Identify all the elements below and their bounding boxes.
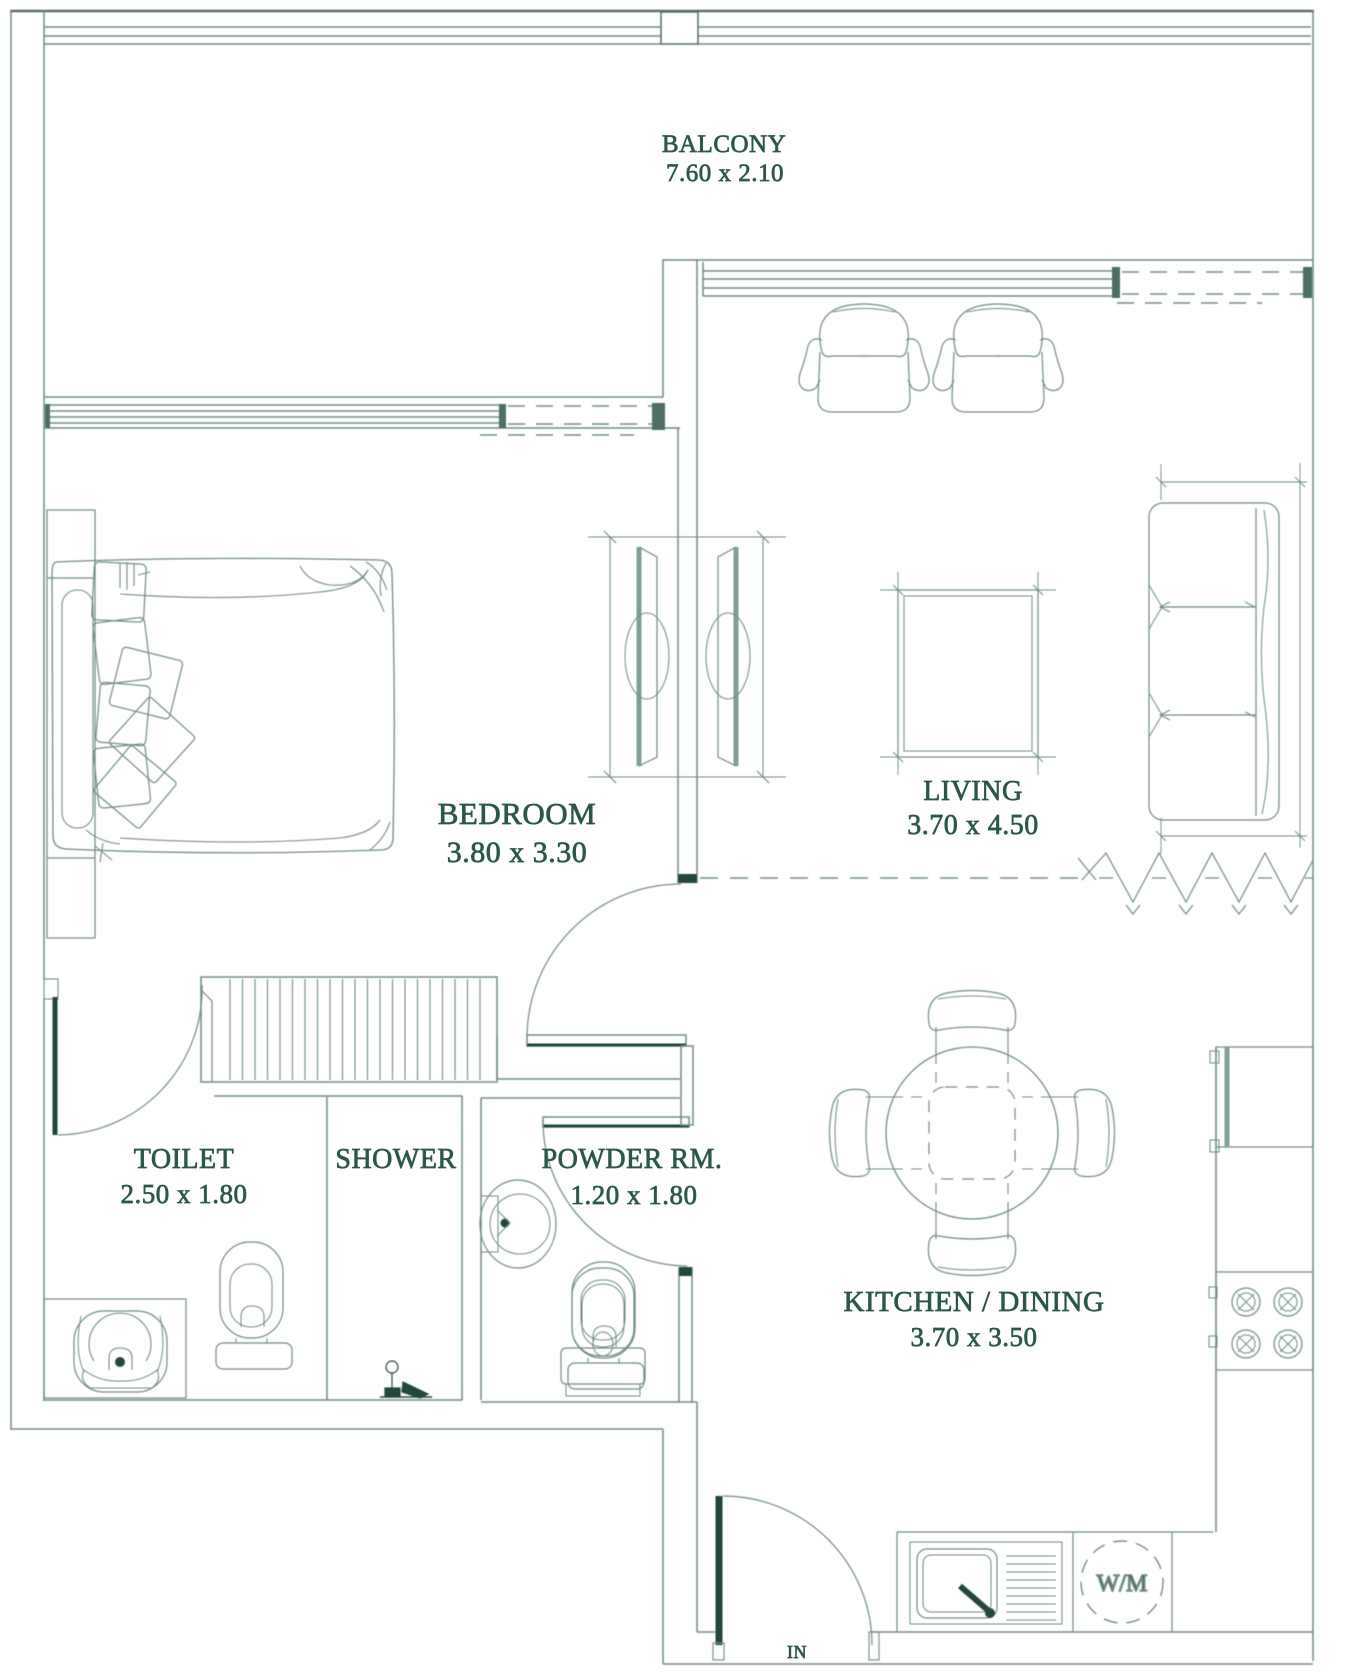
svg-text:2.50 x 1.80: 2.50 x 1.80 [121,1179,248,1209]
svg-text:7.60 x 2.10: 7.60 x 2.10 [666,160,784,187]
svg-text:POWDER RM.: POWDER RM. [542,1144,723,1175]
svg-text:SHOWER: SHOWER [335,1144,456,1175]
svg-text:3.70 x 4.50: 3.70 x 4.50 [907,810,1039,841]
svg-text:TOILET: TOILET [134,1144,234,1175]
svg-text:BEDROOM: BEDROOM [438,796,597,831]
svg-text:W/M: W/M [1097,1571,1148,1597]
svg-text:BALCONY: BALCONY [662,131,786,158]
svg-text:KITCHEN / DINING: KITCHEN / DINING [844,1286,1105,1318]
svg-text:IN: IN [787,1642,807,1662]
svg-text:LIVING: LIVING [923,776,1022,807]
svg-text:3.80 x 3.30: 3.80 x 3.30 [447,836,588,869]
svg-text:3.70 x 3.50: 3.70 x 3.50 [911,1322,1038,1352]
svg-text:1.20 x 1.80: 1.20 x 1.80 [571,1180,698,1210]
